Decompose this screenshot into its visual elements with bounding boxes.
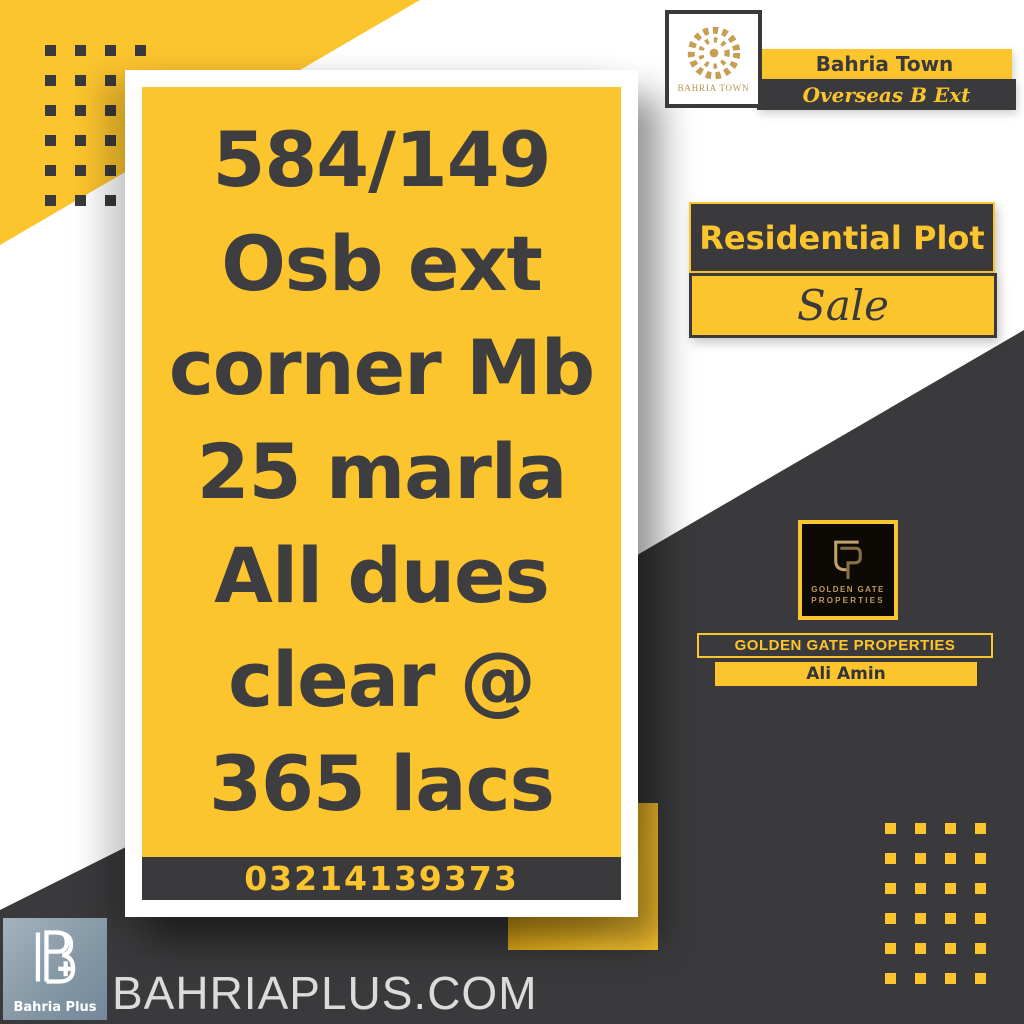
dot <box>45 45 56 56</box>
dot <box>105 195 116 206</box>
dot <box>975 853 986 864</box>
dot <box>885 973 896 984</box>
dot <box>45 135 56 146</box>
yellow-dots-grid <box>885 823 986 984</box>
dot <box>105 165 116 176</box>
town-name: Bahria Town <box>816 52 954 76</box>
bahria-town-logo-label: BAHRIA TOWN <box>678 83 750 93</box>
bahria-plus-logo: Bahria Plus <box>3 918 107 1020</box>
bahria-town-logo: BAHRIA TOWN <box>665 10 762 108</box>
listing-card-body: 584/149 Osb ext corner Mb 25 marla All d… <box>142 87 621 857</box>
dot <box>885 823 896 834</box>
dot <box>135 45 146 56</box>
dot <box>45 165 56 176</box>
property-type-box: Residential Plot <box>689 202 995 273</box>
dot <box>915 913 926 924</box>
dot <box>45 195 56 206</box>
dot <box>975 823 986 834</box>
listing-line: 584/149 <box>212 108 550 212</box>
property-type-label: Residential Plot <box>699 219 984 257</box>
agency-name-bar: GOLDEN GATE PROPERTIES <box>697 633 993 658</box>
phase-name: Overseas B Ext <box>803 83 971 107</box>
website-text: BAHRIAPLUS.COM <box>112 966 538 1020</box>
golden-gate-logo-line1: GOLDEN GATE <box>811 585 884 594</box>
golden-gate-logo-line2: PROPERTIES <box>811 596 885 605</box>
agent-name-bar: Ali Amin <box>715 662 977 686</box>
bahria-town-phase-bar: Overseas B Ext <box>757 79 1016 110</box>
listing-line: 25 marla <box>197 420 567 524</box>
sale-status-box: Sale <box>689 273 997 338</box>
listing-line: clear @ <box>228 628 535 732</box>
dot <box>885 913 896 924</box>
listing-line: 365 lacs <box>209 732 554 836</box>
listing-line: All dues <box>214 524 549 628</box>
listing-line: corner Mb <box>169 316 594 420</box>
bahria-town-emblem-icon <box>686 25 742 81</box>
dot <box>105 45 116 56</box>
golden-gate-logo: GOLDEN GATE PROPERTIES <box>798 520 898 620</box>
dot <box>915 973 926 984</box>
dot <box>915 943 926 954</box>
dot <box>75 105 86 116</box>
dot <box>915 853 926 864</box>
dot <box>885 853 896 864</box>
dot <box>945 853 956 864</box>
dot <box>45 105 56 116</box>
dot <box>75 135 86 146</box>
listing-card: 584/149 Osb ext corner Mb 25 marla All d… <box>125 70 638 917</box>
dot <box>75 75 86 86</box>
dot <box>75 45 86 56</box>
agency-name: GOLDEN GATE PROPERTIES <box>735 637 956 654</box>
golden-gate-monogram-icon <box>825 536 871 582</box>
bahria-town-name-bar: Bahria Town <box>757 49 1012 79</box>
agent-name: Ali Amin <box>806 664 886 684</box>
dot <box>975 943 986 954</box>
sale-status-label: Sale <box>797 281 889 330</box>
dot <box>885 943 896 954</box>
dot <box>975 973 986 984</box>
dot <box>945 823 956 834</box>
dot <box>105 105 116 116</box>
poster-canvas: 584/149 Osb ext corner Mb 25 marla All d… <box>0 0 1024 1024</box>
dot <box>885 883 896 894</box>
dot <box>75 195 86 206</box>
dot <box>105 75 116 86</box>
phone-number: 03214139373 <box>244 859 519 898</box>
dot <box>975 913 986 924</box>
bahria-plus-monogram-icon <box>23 926 87 988</box>
dot <box>945 943 956 954</box>
dot <box>915 823 926 834</box>
dot <box>945 913 956 924</box>
dot <box>915 883 926 894</box>
dot <box>945 973 956 984</box>
dot <box>945 883 956 894</box>
bahria-plus-label: Bahria Plus <box>13 1000 96 1015</box>
dot <box>75 165 86 176</box>
listing-line: Osb ext <box>221 212 542 316</box>
dot <box>975 883 986 894</box>
dot <box>105 135 116 146</box>
phone-bar: 03214139373 <box>142 857 621 900</box>
dot <box>45 75 56 86</box>
